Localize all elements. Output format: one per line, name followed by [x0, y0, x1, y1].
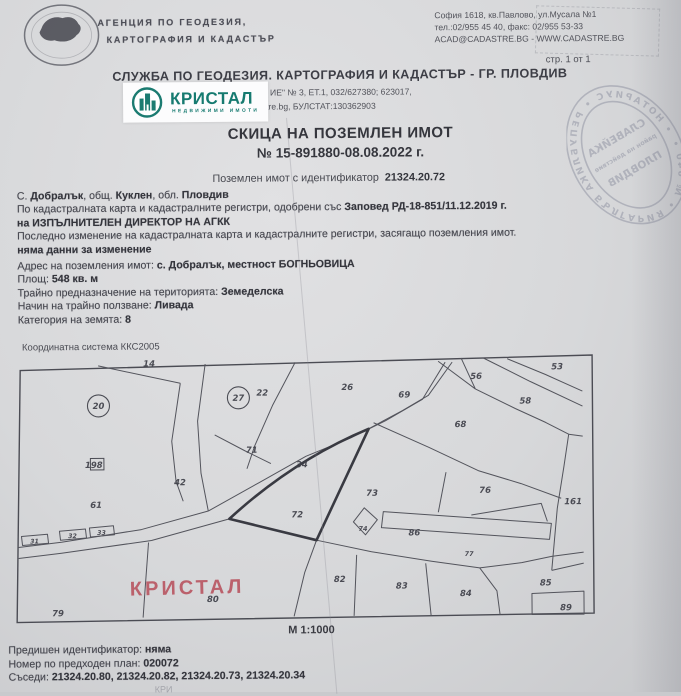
- kristal-logo-name: КРИСТАЛ: [170, 89, 253, 110]
- hq-address-block: София 1618, кв.Павлово, ул.Мусала №1 тел…: [434, 8, 624, 45]
- parcel-label-85: 85: [540, 578, 552, 588]
- parcel-label-14: 14: [143, 359, 155, 369]
- parcel-label-33: 33: [97, 530, 106, 537]
- parcel-label-76: 76: [479, 486, 491, 496]
- parcel-label-61: 61: [90, 501, 102, 511]
- parcel-label-198: 198: [85, 461, 103, 471]
- hq-address-line3: ACAD@CADASTRE.BG - WWW.CADASTRE.BG: [435, 32, 625, 45]
- property-id-line: Поземлен имот с идентификатор 21324.20.7…: [212, 171, 445, 185]
- kristal-buildings-icon: [130, 85, 164, 119]
- hq-address-line1: София 1618, кв.Павлово, ул.Мусала №1: [434, 8, 624, 21]
- parcel-label-84: 84: [460, 589, 472, 599]
- page-curl-shadow: [631, 0, 681, 692]
- parcel-label-77: 77: [465, 550, 475, 558]
- parcel-label-69: 69: [398, 390, 410, 400]
- agency-name-line1: АГЕНЦИЯ ПО ГЕОДЕЗИЯ,: [97, 14, 275, 32]
- parcel-label-26: 26: [341, 383, 353, 393]
- parcel-label-42: 42: [173, 478, 186, 488]
- parcel-label-74: 74: [358, 525, 368, 533]
- parcel-label-53: 53: [551, 362, 563, 372]
- map-labels: 1420272226695653586871198423461727376161…: [29, 356, 583, 619]
- doc-title: СКИЦА НА ПОЗЕМЛЕН ИМОТ: [228, 124, 453, 143]
- parcel-label-20: 20: [93, 402, 105, 412]
- building-89: [532, 591, 584, 614]
- parcel-label-161: 161: [564, 497, 582, 507]
- agency-name: АГЕНЦИЯ ПО ГЕОДЕЗИЯ, КАРТОГРАФИЯ И КАДАС…: [97, 14, 275, 49]
- parcel-label-83: 83: [396, 581, 408, 591]
- parcel-label-31: 31: [30, 538, 39, 545]
- parcel-label-68: 68: [455, 420, 467, 430]
- parcel-label-71: 71: [246, 446, 258, 456]
- parcel-label-34: 34: [296, 460, 308, 470]
- agency-seal-icon: [19, 2, 104, 69]
- office-title: СЛУЖБА ПО ГЕОДЕЗИЯ. КАРТОГРАФИЯ И КАДАСТ…: [112, 66, 567, 84]
- parcel-label-73: 73: [366, 489, 378, 499]
- building-86: [381, 510, 551, 540]
- scanned-page: АГЕНЦИЯ ПО ГЕОДЕЗИЯ, КАРТОГРАФИЯ И КАДАС…: [0, 0, 681, 692]
- cadastral-map: 1420272226695653586871198423461727376161…: [0, 347, 681, 644]
- kristal-logo-tagline: НЕДВИЖИМИ ИМОТИ: [172, 109, 259, 115]
- footer-block: Предишен идентификатор: няма Номер по пр…: [8, 642, 305, 685]
- bulgaria-map-icon: [39, 17, 80, 42]
- property-id-value: 21324.20.72: [385, 171, 445, 183]
- parcel-label-86: 86: [408, 528, 420, 538]
- doc-number: № 15-891880-08.08.2022 г.: [257, 144, 424, 160]
- parcel-label-32: 32: [68, 533, 77, 540]
- parcel-label-89: 89: [560, 603, 572, 613]
- office-address-fragment1: ИЕ" № 3, ЕТ.1, 032/627380; 623017,: [270, 86, 412, 97]
- cut-text-fragment: КРИ: [155, 684, 173, 694]
- parcel-label-72: 72: [291, 510, 303, 520]
- map-watermark: КРИСТАЛ: [130, 576, 245, 602]
- parcel-label-56: 56: [470, 372, 482, 382]
- kristal-logo-box: КРИСТАЛ НЕДВИЖИМИ ИМОТИ: [123, 82, 268, 123]
- parcel-label-79: 79: [52, 609, 64, 619]
- parcel-label-22: 22: [256, 389, 268, 399]
- parcel-label-82: 82: [334, 575, 346, 585]
- agency-name-line2: КАРТОГРАФИЯ И КАДАСТЪР: [98, 31, 276, 49]
- parcel-label-58: 58: [519, 397, 531, 407]
- neighbors-line: Съседи: 21324.20.80, 21324.20.82, 21324.…: [9, 669, 306, 685]
- parcel-label-27: 27: [232, 394, 244, 404]
- office-address-fragment2: tre.bg, БУЛСТАТ:130362903: [266, 101, 376, 112]
- page-content: АГЕНЦИЯ ПО ГЕОДЕЗИЯ, КАРТОГРАФИЯ И КАДАС…: [0, 0, 681, 695]
- parcel-boundaries: [17, 357, 584, 618]
- property-id-label: Поземлен имот с идентификатор: [212, 172, 379, 185]
- map-scale: М 1:1000: [288, 624, 335, 636]
